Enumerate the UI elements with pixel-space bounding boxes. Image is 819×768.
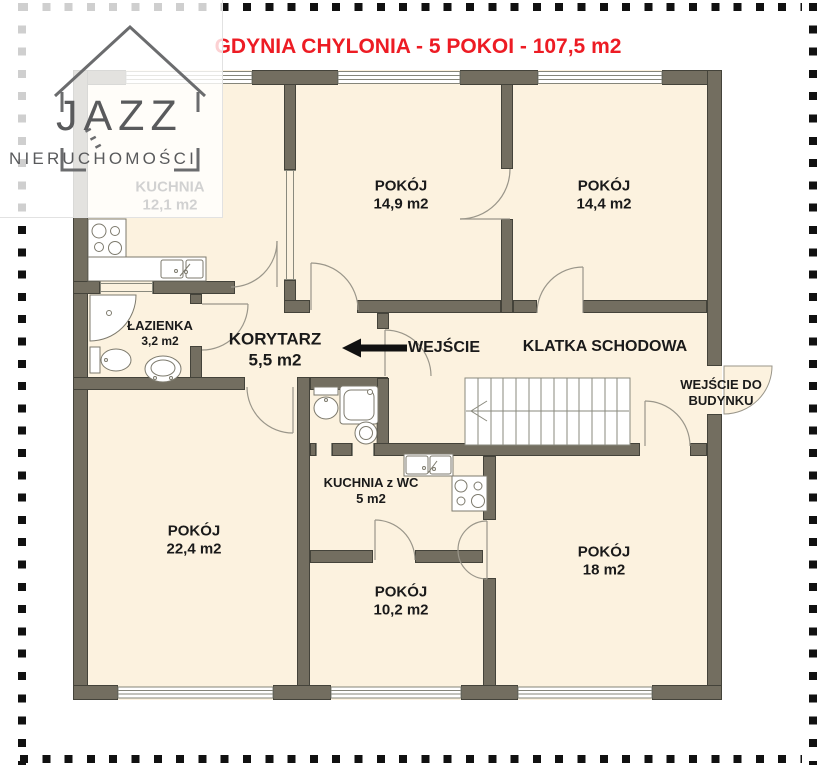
wall-segment: [357, 300, 501, 313]
wall-segment: [252, 70, 338, 85]
room-name: POKÓJ: [578, 544, 631, 562]
wall-segment: [73, 281, 100, 294]
room-name: KUCHNIA z WC: [324, 475, 419, 491]
wall-segment: [374, 443, 640, 456]
logo-subtitle-text: NIERUCHOMOŚCI: [9, 149, 197, 169]
wall-segment: [483, 456, 496, 520]
wall-segment: [652, 685, 722, 700]
wall-segment: [513, 300, 537, 313]
wall-segment: [583, 300, 707, 313]
room-name: POKÓJ: [373, 584, 428, 602]
room-label-pokoj-18: POKÓJ 18 m2: [578, 544, 631, 581]
wall-segment: [273, 685, 331, 700]
floor-plan-page: GDYNIA CHYLONIA - 5 POKOI - 107,5 m2: [0, 0, 819, 768]
room-name: KORYTARZ: [229, 329, 322, 350]
wall-segment: [284, 300, 310, 313]
wall-segment: [310, 550, 373, 563]
room-area: 5 m2: [324, 491, 419, 507]
room-name: ŁAZIENKA: [127, 318, 193, 334]
wall-segment: [377, 313, 389, 329]
wall-segment: [73, 377, 245, 390]
wall-segment: [153, 281, 235, 294]
wall-segment: [332, 443, 352, 456]
room-label-pokoj-14-4: POKÓJ 14,4 m2: [576, 178, 631, 215]
wall-segment: [707, 70, 722, 366]
wall-segment: [284, 84, 296, 170]
room-area: 10,2 m2: [373, 602, 428, 620]
room-label-pokoj-10-2: POKÓJ 10,2 m2: [373, 584, 428, 621]
room-area: 14,9 m2: [373, 196, 428, 214]
room-name: POKÓJ: [373, 178, 428, 196]
room-area: 18 m2: [578, 562, 631, 580]
border-dots-right: [809, 3, 817, 765]
wall-segment: [501, 84, 513, 169]
room-name: POKÓJ: [166, 523, 221, 541]
room-label-pokoj-22-4: POKÓJ 22,4 m2: [166, 523, 221, 560]
wall-segment: [190, 294, 202, 304]
wall-segment: [707, 414, 722, 700]
entrance-label: WEJŚCIE: [408, 338, 480, 358]
wall-segment: [690, 443, 707, 456]
room-label-pokoj-14-9: POKÓJ 14,9 m2: [373, 178, 428, 215]
building-entrance-label: WEJŚCIE DO BUDYNKU: [680, 377, 762, 409]
logo-brand-text: JAZZ: [56, 92, 183, 141]
wall-segment: [483, 578, 496, 686]
staircase-label: KLATKA SCHODOWA: [523, 337, 687, 357]
wall-segment: [461, 685, 518, 700]
wall-segment: [460, 70, 538, 85]
wall-segment: [297, 377, 310, 686]
wall-segment: [310, 443, 316, 456]
room-name: POKÓJ: [576, 178, 631, 196]
room-label-kuchnia-z-wc: KUCHNIA z WC 5 m2: [324, 475, 419, 507]
room-label-lazienka: ŁAZIENKA 3,2 m2: [127, 318, 193, 348]
wall-segment: [73, 685, 118, 700]
page-title: GDYNIA CHYLONIA - 5 POKOI - 107,5 m2: [215, 35, 622, 59]
room-area: 5,5 m2: [229, 350, 322, 371]
room-area: 14,4 m2: [576, 196, 631, 214]
wall-segment: [415, 550, 483, 563]
wall-segment: [501, 219, 513, 313]
room-label-korytarz: KORYTARZ 5,5 m2: [229, 329, 322, 370]
border-dots-bottom: [20, 755, 802, 763]
room-area: 22,4 m2: [166, 541, 221, 559]
room-area: 3,2 m2: [127, 334, 193, 349]
